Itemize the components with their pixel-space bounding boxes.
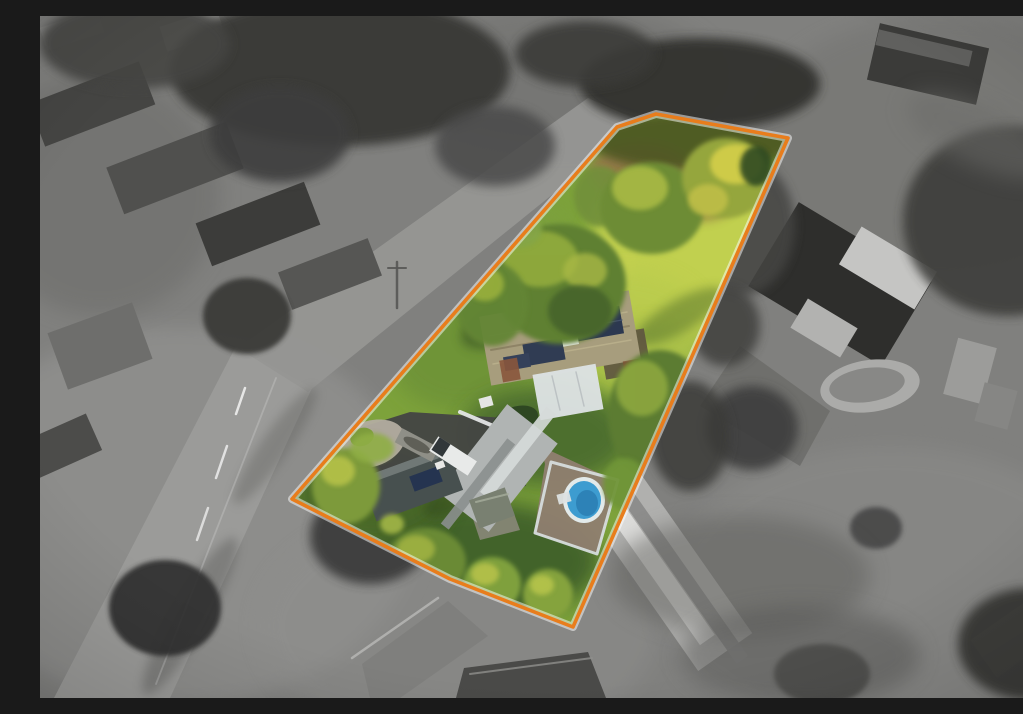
aerial-photo-svg (40, 16, 1023, 698)
vignette-overlay (40, 16, 1023, 698)
aerial-property-photo (40, 16, 1023, 698)
